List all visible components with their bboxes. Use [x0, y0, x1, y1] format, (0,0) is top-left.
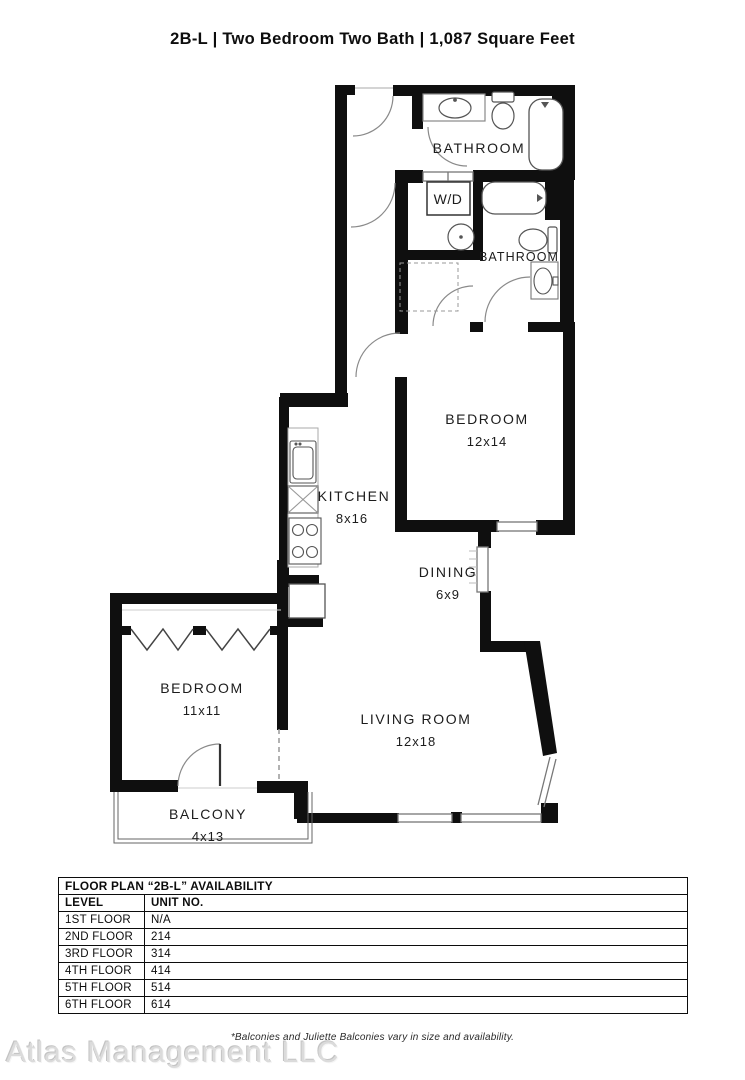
room-dims-bedroom1: 12x14: [467, 434, 507, 449]
unit-cell: 414: [145, 963, 688, 980]
table-title-row: FLOOR PLAN “2B-L” AVAILABILITY: [59, 878, 688, 895]
room-label-kitchen: KITCHEN: [318, 488, 391, 504]
table-row: 5TH FLOOR 514: [59, 980, 688, 997]
table-row: 3RD FLOOR 314: [59, 946, 688, 963]
room-label-laundry: W/D: [434, 191, 463, 207]
column-header-unit-no: UNIT NO.: [145, 895, 688, 912]
bathroom2-bathtub: [482, 182, 546, 214]
bathroom2-vanity: [531, 262, 558, 299]
unit-cell: 514: [145, 980, 688, 997]
table-row: 6TH FLOOR 614: [59, 997, 688, 1014]
laundry-sink: [448, 224, 474, 250]
room-label-dining: DINING: [419, 564, 478, 580]
unit-cell: 614: [145, 997, 688, 1014]
room-label-bathroom1: BATHROOM: [433, 140, 526, 156]
column-header-level: LEVEL: [59, 895, 145, 912]
linen-closet-dashed: [400, 263, 458, 311]
dishwasher: [288, 486, 318, 513]
table-title: FLOOR PLAN “2B-L” AVAILABILITY: [59, 878, 688, 895]
room-dims-living-room: 12x18: [396, 734, 436, 749]
table-row: 4TH FLOOR 414: [59, 963, 688, 980]
table-row: 1ST FLOOR N/A: [59, 912, 688, 929]
stove: [289, 518, 321, 564]
level-cell: 1ST FLOOR: [59, 912, 145, 929]
refrigerator: [289, 584, 325, 618]
footnote: *Balconies and Juliette Balconies vary i…: [0, 1032, 745, 1043]
level-cell: 6TH FLOOR: [59, 997, 145, 1014]
room-label-balcony: BALCONY: [169, 806, 247, 822]
unit-cell: N/A: [145, 912, 688, 929]
room-label-bedroom2: BEDROOM: [160, 680, 244, 696]
level-cell: 5TH FLOOR: [59, 980, 145, 997]
bathroom1-bathtub: [529, 99, 563, 170]
table-row: 2ND FLOOR 214: [59, 929, 688, 946]
room-label-living-room: LIVING ROOM: [361, 711, 472, 727]
room-dims-balcony: 4x13: [192, 829, 224, 844]
level-cell: 2ND FLOOR: [59, 929, 145, 946]
level-cell: 4TH FLOOR: [59, 963, 145, 980]
availability-table: FLOOR PLAN “2B-L” AVAILABILITY LEVEL UNI…: [58, 877, 688, 1014]
table-header-row: LEVEL UNIT NO.: [59, 895, 688, 912]
room-dims-bedroom2: 11x11: [183, 703, 222, 718]
unit-cell: 314: [145, 946, 688, 963]
bathroom1-toilet: [492, 92, 514, 129]
room-label-bedroom1: BEDROOM: [445, 411, 529, 427]
kitchen-sink: [290, 441, 316, 483]
unit-cell: 214: [145, 929, 688, 946]
room-dims-kitchen: 8x16: [336, 511, 368, 526]
bathroom1-vanity: [423, 94, 485, 121]
closet-rod: [120, 610, 281, 650]
room-dims-dining: 6x9: [436, 587, 460, 602]
level-cell: 3RD FLOOR: [59, 946, 145, 963]
room-label-bathroom2: BATHROOM: [479, 250, 559, 264]
